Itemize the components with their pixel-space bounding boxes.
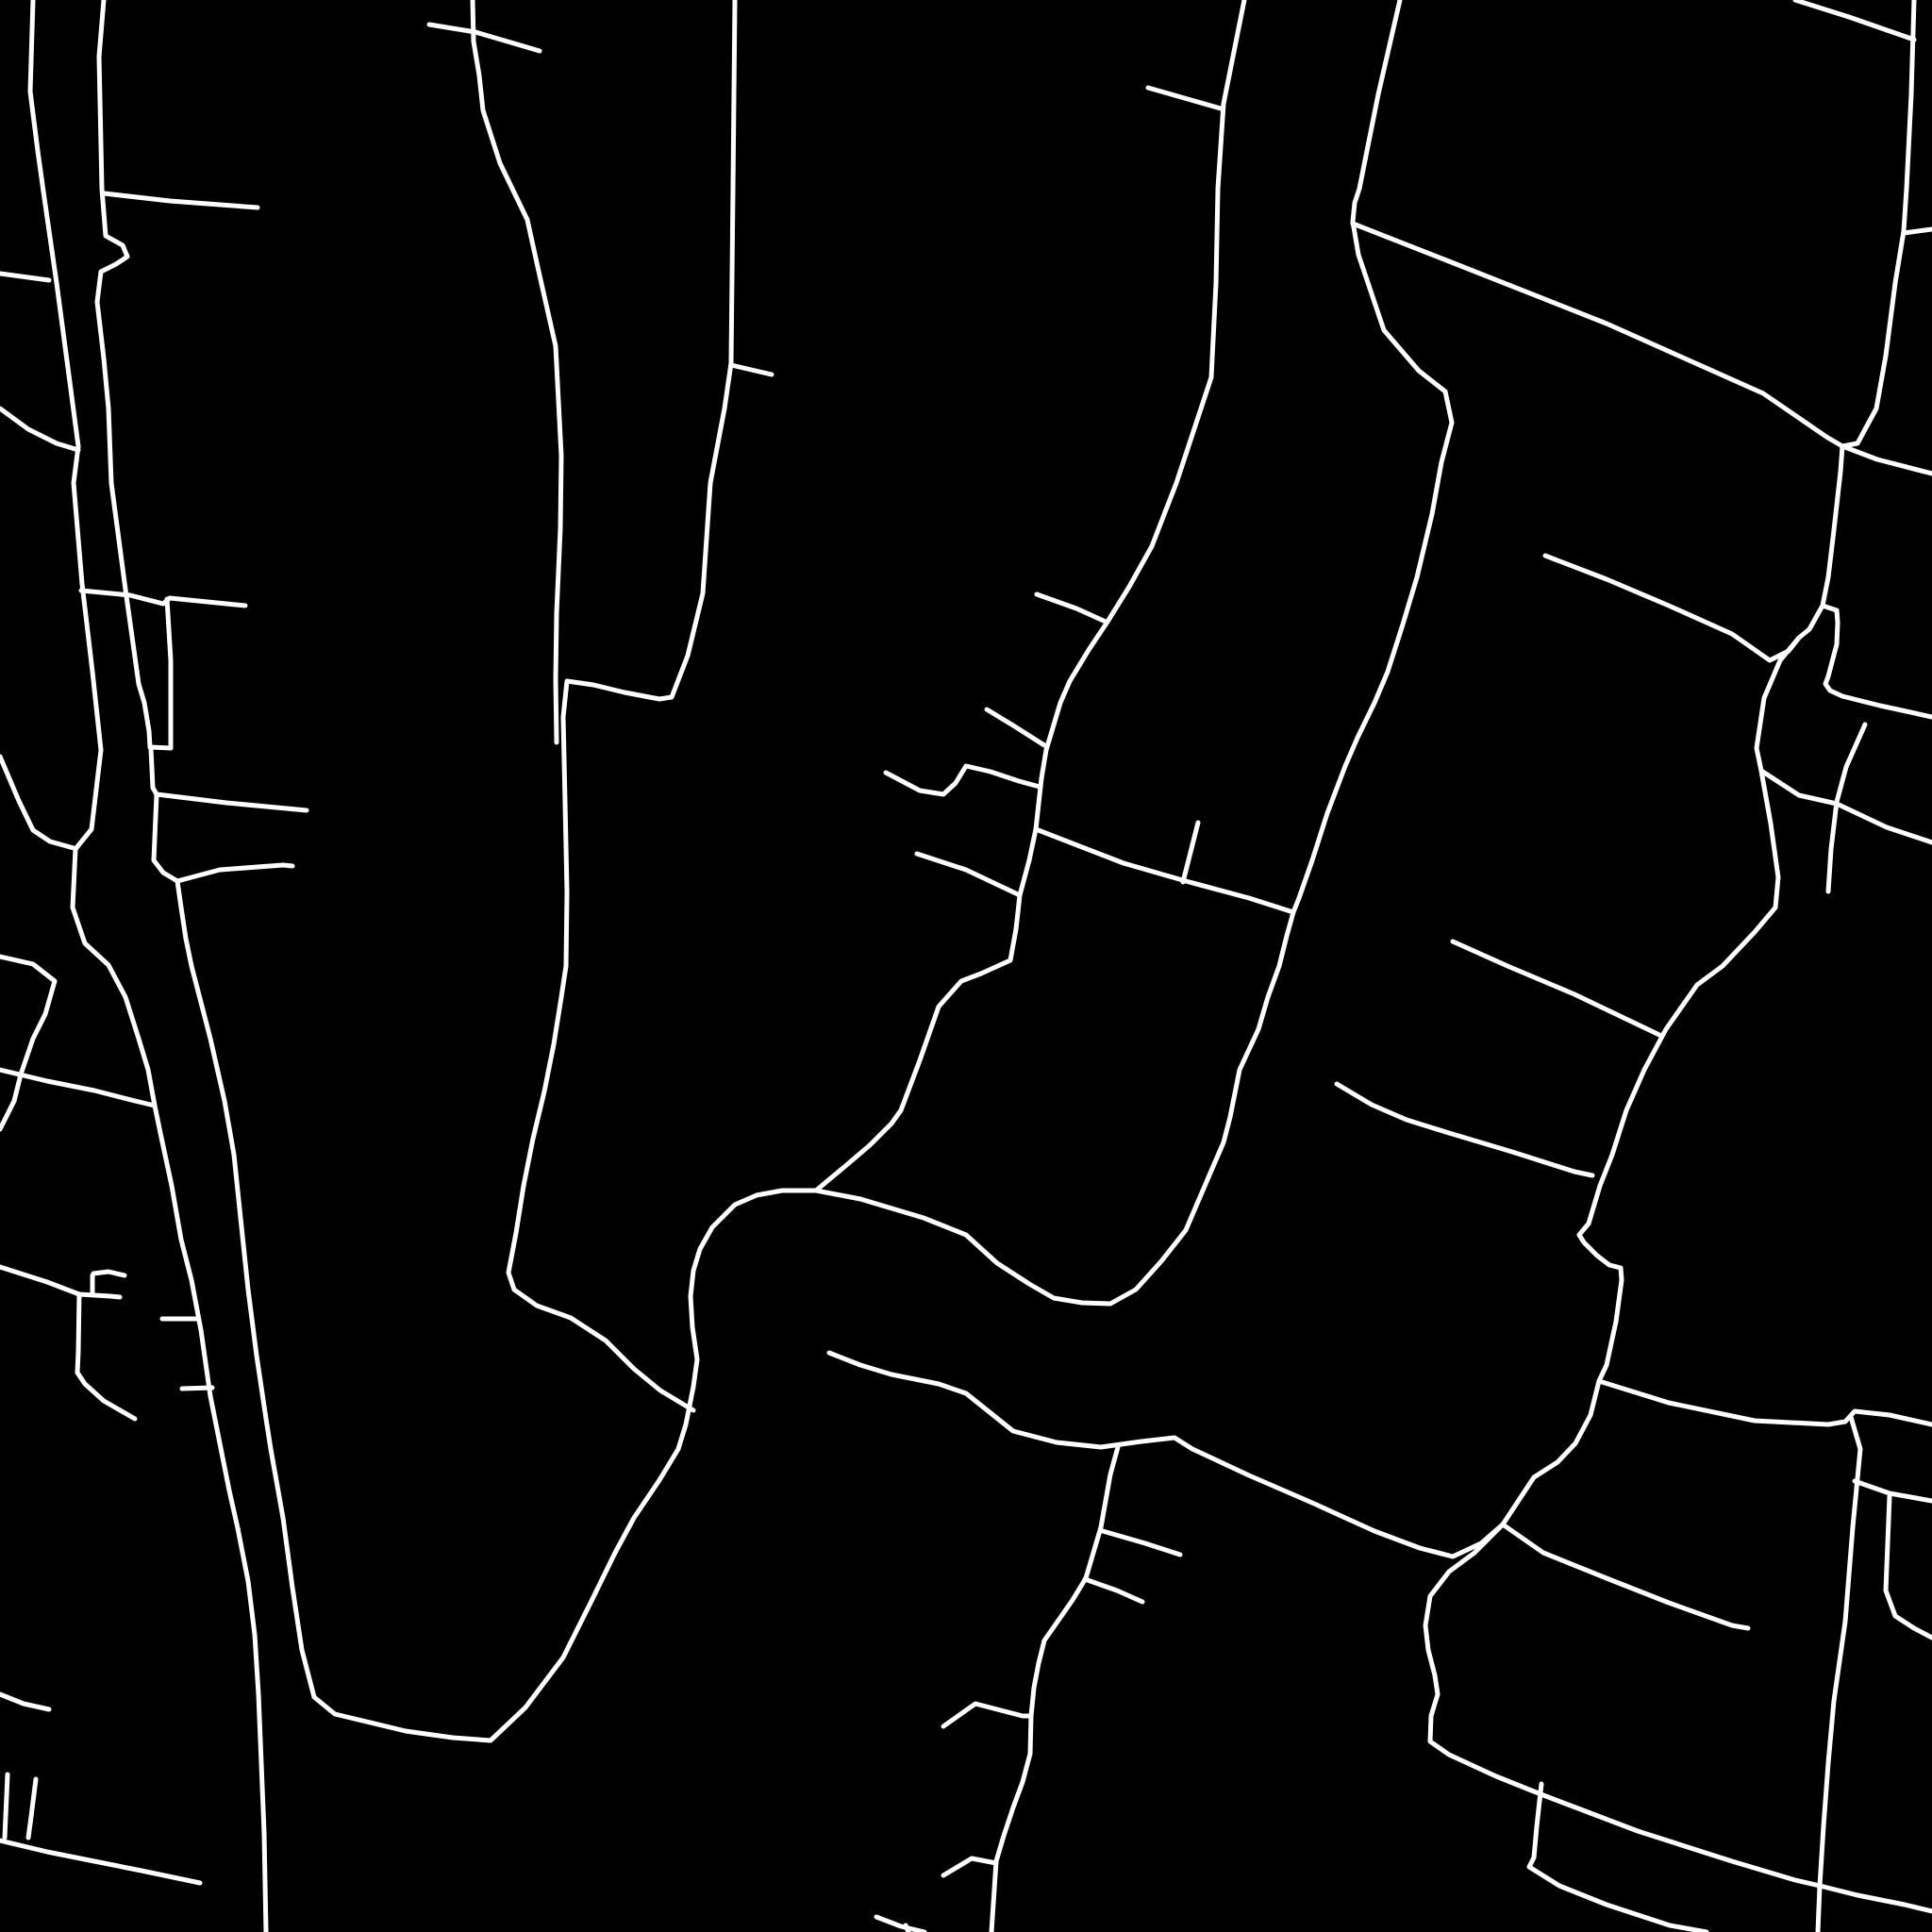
map-background <box>0 0 1932 1932</box>
road-network-map <box>0 0 1932 1932</box>
road-segment-southwest-tick-2 <box>182 1388 212 1389</box>
road-segment-south-edge-tick-1 <box>5 1774 8 1838</box>
road-segment-west-short-connector <box>150 747 171 748</box>
map-canvas <box>0 0 1932 1932</box>
road-segment-bottom-edge-tick <box>906 1925 908 1932</box>
